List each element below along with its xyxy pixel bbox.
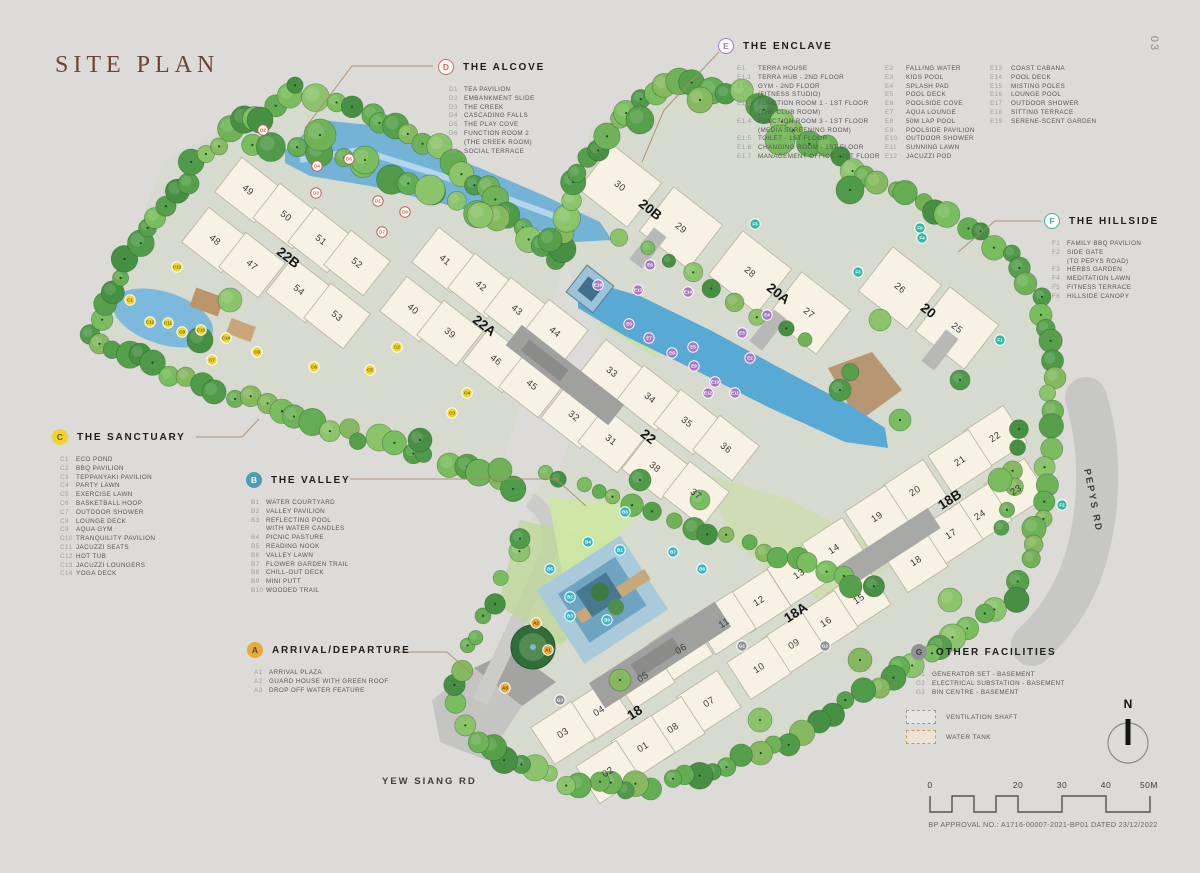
- map-marker-code: D7: [379, 230, 385, 235]
- legend-column: A1ARRIVAL PLAZAA2GUARD HOUSE WITH GREEN …: [254, 669, 389, 695]
- map-marker-code: E19: [594, 283, 603, 288]
- legend-item-code: B6: [251, 552, 266, 561]
- legend-item: C2BBQ PAVILION: [60, 465, 155, 474]
- legend-item-label: OUTDOOR SHOWER: [1011, 100, 1079, 109]
- legend-item-label: EXERCISE LAWN: [76, 491, 133, 500]
- legend-item: E14POOL DECK: [990, 74, 1097, 83]
- legend-item-label: SPLASH PAD: [906, 83, 949, 92]
- legend-item: G3BIN CENTRE - BASEMENT: [916, 689, 1065, 698]
- legend-item: C1ECO POND: [60, 456, 155, 465]
- legend-item-label: EMBANKMENT SLIDE: [464, 95, 535, 104]
- legend-item-code: E1.6: [737, 144, 758, 153]
- scale-tick: 40: [1101, 780, 1111, 790]
- legend-item-code: C3: [60, 474, 76, 483]
- legend-item-code: D7: [449, 148, 464, 157]
- legend-item-label: TEA PAVILION: [464, 86, 511, 95]
- map-marker-code: E14: [684, 290, 693, 295]
- map-marker-code: F2: [1059, 503, 1065, 508]
- legend-item-label: TERRA HOUSE: [758, 65, 808, 74]
- legend-item-code: G2: [916, 680, 932, 689]
- legend-item-label: FLOWER GARDEN TRAIL: [266, 561, 349, 570]
- map-marker-code: E3: [739, 331, 745, 336]
- legend-item-label: LOUNGE POOL: [1011, 91, 1061, 100]
- map-marker-code: F1: [997, 338, 1003, 343]
- legend-item: B5READING NOOK: [251, 543, 349, 552]
- legend-item-label: POOL DECK: [906, 91, 946, 100]
- map-marker-code: E11: [731, 391, 739, 396]
- road-label-yew-siang: YEW SIANG RD: [382, 776, 477, 787]
- legend-badge-E: E: [718, 38, 734, 54]
- legend-item: E1.2GYM - 2ND FLOOR: [737, 83, 880, 92]
- legend-item-code: F4: [1052, 275, 1067, 284]
- page-number: 03: [1148, 36, 1160, 52]
- scale-tick: 20: [1013, 780, 1023, 790]
- legend-item: F5FITNESS TERRACE: [1052, 284, 1141, 293]
- legend-item: C9AQUA GYM: [60, 526, 155, 535]
- legend-item: E6POOLSIDE COVE: [885, 100, 975, 109]
- legend-section-E: ETHE ENCLAVEE1TERRA HOUSEE1.1TERRA HUB -…: [718, 38, 833, 54]
- legend-item-code: [737, 127, 758, 136]
- legend-column: E1TERRA HOUSEE1.1TERRA HUB - 2ND FLOORE1…: [737, 65, 880, 162]
- map-marker-code: C10: [197, 328, 206, 333]
- compass-icon: [1100, 711, 1156, 767]
- legend-item-code: C9: [60, 526, 76, 535]
- legend-item-code: D1: [449, 86, 464, 95]
- legend-item-label: COAST CABANA: [1011, 65, 1065, 74]
- legend-item-code: D6: [449, 130, 464, 139]
- map-marker-code: G1: [739, 644, 746, 649]
- legend-item-code: E14: [990, 74, 1011, 83]
- legend-item-code: [1052, 258, 1067, 267]
- legend-item: E19SERENE-SCENT GARDEN: [990, 118, 1097, 127]
- legend-title: OTHER FACILITIES: [936, 647, 1056, 658]
- legend-item: C7OUTDOOR SHOWER: [60, 509, 155, 518]
- legend-item-label: JACUZZI POD: [906, 153, 952, 162]
- legend-item: C14YOGA DECK: [60, 570, 155, 579]
- legend-title: THE HILLSIDE: [1069, 216, 1159, 227]
- legend-item: E4SPLASH PAD: [885, 83, 975, 92]
- legend-item-label: HOT TUB: [76, 553, 106, 562]
- legend-item-code: C13: [60, 562, 76, 571]
- legend-item-label: FAMILY BBQ PAVILION: [1067, 240, 1141, 249]
- legend-item: E7AQUA LOUNGE: [885, 109, 975, 118]
- page-title: SITE PLAN: [55, 52, 219, 79]
- legend-item: G2ELECTRICAL SUBSTATION - BASEMENT: [916, 680, 1065, 689]
- legend-item-code: E5: [885, 91, 906, 100]
- legend-item-code: E12: [885, 153, 906, 162]
- map-marker-code: B3: [567, 614, 573, 619]
- legend-item: E3KIDS POOL: [885, 74, 975, 83]
- legend-item-code: E6: [885, 100, 906, 109]
- legend-item: F1FAMILY BBQ PAVILION: [1052, 240, 1141, 249]
- map-marker-code: E8: [647, 263, 653, 268]
- map-marker-code: C5: [367, 368, 373, 373]
- legend-item-code: E13: [990, 65, 1011, 74]
- legend-item-code: B5: [251, 543, 266, 552]
- legend-item-code: F2: [1052, 249, 1067, 258]
- legend-item-code: E3: [885, 74, 906, 83]
- map-marker-code: G2: [822, 644, 829, 649]
- legend-item-code: E9: [885, 127, 906, 136]
- map-marker-code: E8: [669, 351, 675, 356]
- legend-item: C10TRANQUILITY PAVILION: [60, 535, 155, 544]
- legend-item: B4PICNIC PASTURE: [251, 534, 349, 543]
- legend-item-code: E1.7: [737, 153, 758, 162]
- legend-item: E16LOUNGE POOL: [990, 91, 1097, 100]
- map-marker-code: B7: [670, 550, 676, 555]
- legend-item-code: G3: [916, 689, 932, 698]
- map-marker-code: C14: [222, 336, 231, 341]
- legend-item-code: G1: [916, 671, 932, 680]
- ventilation-shaft-icon: [906, 710, 936, 724]
- map-marker-code: A3: [502, 686, 508, 691]
- legend-item-label: MEDITATION LAWN: [1067, 275, 1131, 284]
- water-tank-label: WATER TANK: [946, 734, 991, 741]
- legend-section-D: DTHE ALCOVED1TEA PAVILIOND2EMBANKMENT SL…: [438, 59, 545, 75]
- legend-item-code: C4: [60, 482, 76, 491]
- legend-item-label: POOLSIDE COVE: [906, 100, 963, 109]
- legend-item-label: KIDS POOL: [906, 74, 944, 83]
- legend-item-code: C1: [60, 456, 76, 465]
- legend-item: D4CASCADING FALLS: [449, 112, 535, 121]
- ventilation-shaft-label: VENTILATION SHAFT: [946, 714, 1018, 721]
- legend-item-code: C10: [60, 535, 76, 544]
- legend-item-label: WOODED TRAIL: [266, 587, 319, 596]
- legend-header: BTHE VALLEY: [246, 472, 350, 488]
- legend-item-code: F1: [1052, 240, 1067, 249]
- legend-item-label: AQUA GYM: [76, 526, 113, 535]
- legend-title: ARRIVAL/DEPARTURE: [272, 645, 411, 656]
- legend-item-code: B1: [251, 499, 266, 508]
- legend-item: B6VALLEY LAWN: [251, 552, 349, 561]
- map-marker-code: C8: [254, 350, 260, 355]
- legend-badge-F: F: [1044, 213, 1060, 229]
- legend-item: E17OUTDOOR SHOWER: [990, 100, 1097, 109]
- legend-title: THE SANCTUARY: [77, 432, 186, 443]
- map-marker-code: E7: [646, 336, 652, 341]
- map-marker-code: E13: [634, 288, 643, 293]
- legend-item: A1ARRIVAL PLAZA: [254, 669, 389, 678]
- legend-item-code: E1.1: [737, 74, 758, 83]
- legend-badge-A: A: [247, 642, 263, 658]
- map-marker-code: C3: [449, 411, 455, 416]
- legend-item-label: WATER COURTYARD: [266, 499, 335, 508]
- map-marker-code: B6: [622, 510, 628, 515]
- legend-header: ETHE ENCLAVE: [718, 38, 833, 54]
- legend-item-code: C7: [60, 509, 76, 518]
- legend-item-code: A1: [254, 669, 269, 678]
- legend-item-code: E19: [990, 118, 1011, 127]
- legend-item-label: MANAGEMENT OFFICE - 1ST FLOOR: [758, 153, 880, 162]
- legend-item-code: [449, 139, 464, 148]
- map-marker-code: C7: [209, 358, 215, 363]
- legend-item-label: TRANQUILITY PAVILION: [76, 535, 155, 544]
- legend-item-code: A3: [254, 687, 269, 696]
- legend-item: (TO PEPYS ROAD): [1052, 258, 1141, 267]
- legend-item-code: D5: [449, 121, 464, 130]
- map-marker-code: D4: [314, 164, 320, 169]
- legend-item-label: CHANGING ROOM - 1ST FLOOR: [758, 144, 864, 153]
- legend-item: E12JACUZZI POD: [885, 153, 975, 162]
- legend-item-label: OUTDOOR SHOWER: [906, 135, 974, 144]
- legend-item-code: C6: [60, 500, 76, 509]
- legend-item-label: PARTY LAWN: [76, 482, 120, 491]
- legend-item-label: REFLECTING POOL: [266, 517, 331, 526]
- map-marker-code: C6: [311, 365, 317, 370]
- legend-item-label: FUNCTION ROOM 3 - 1ST FLOOR: [758, 118, 868, 127]
- legend-item: F3HERBS GARDEN: [1052, 266, 1141, 275]
- legend-item: E18SITTING TERRACE: [990, 109, 1097, 118]
- legend-column: B1WATER COURTYARDB2VALLEY PAVILIONB3REFL…: [251, 499, 349, 596]
- legend-badge-D: D: [438, 59, 454, 75]
- legend-item-code: A2: [254, 678, 269, 687]
- legend-item-code: E1.2: [737, 83, 758, 92]
- scale-tick: 50M: [1140, 780, 1158, 790]
- map-marker-code: B2: [567, 595, 573, 600]
- legend-column: G1GENERATOR SET - BASEMENTG2ELECTRICAL S…: [916, 671, 1065, 697]
- legend-item: C12HOT TUB: [60, 553, 155, 562]
- legend-item-label: POOLSIDE PAVILION: [906, 127, 975, 136]
- legend-item-label: TEPPANYAKI PAVILION: [76, 474, 152, 483]
- legend-item-label: PICNIC PASTURE: [266, 534, 324, 543]
- map-marker-code: B8: [699, 567, 705, 572]
- legend-item: B7FLOWER GARDEN TRAIL: [251, 561, 349, 570]
- map-marker-code: B4: [585, 540, 591, 545]
- legend-item-code: F5: [1052, 284, 1067, 293]
- legend-item: D3THE CREEK: [449, 104, 535, 113]
- map-marker-code: C12: [146, 320, 155, 325]
- legend-item: E1TERRA HOUSE: [737, 65, 880, 74]
- legend-item-code: D4: [449, 112, 464, 121]
- legend-item: C8LOUNGE DECK: [60, 518, 155, 527]
- map-marker-code: E2: [747, 356, 753, 361]
- legend-item-label: VALLEY PAVILION: [266, 508, 325, 517]
- legend-item-label: GENERATOR SET - BASEMENT: [932, 671, 1035, 680]
- legend-item-code: E4: [885, 83, 906, 92]
- approval-note: BP APPROVAL NO.: A1716-00007-2021-BP01 D…: [918, 820, 1168, 829]
- scale-bar: 020304050M: [925, 774, 1165, 820]
- legend-item-code: E15: [990, 83, 1011, 92]
- legend-item: C11JACUZZI SEATS: [60, 544, 155, 553]
- legend-item: E9POOLSIDE PAVILION: [885, 127, 975, 136]
- legend-item-code: E18: [990, 109, 1011, 118]
- map-marker-code: E4: [764, 313, 770, 318]
- map-marker-code: B1: [617, 548, 623, 553]
- legend-item: C3TEPPANYAKI PAVILION: [60, 474, 155, 483]
- legend-section-B: BTHE VALLEYB1WATER COURTYARDB2VALLEY PAV…: [246, 472, 350, 488]
- map-marker-code: C1: [127, 298, 133, 303]
- site-plan-page: D2D4D5D3D1D6D7C1C13C11C9C10C12C14C7C8C6C…: [0, 0, 1200, 873]
- map-marker-code: F4: [919, 236, 925, 241]
- legend-item: D1TEA PAVILION: [449, 86, 535, 95]
- legend-item-label: HERBS GARDEN: [1067, 266, 1122, 275]
- legend-item-code: B9: [251, 578, 266, 587]
- legend-item-code: E7: [885, 109, 906, 118]
- legend-item: E5POOL DECK: [885, 91, 975, 100]
- legend-item-label: (MEDIA SCREENING ROOM): [758, 127, 851, 136]
- legend-item: E1.1TERRA HUB - 2ND FLOOR: [737, 74, 880, 83]
- legend-column: F1FAMILY BBQ PAVILIONF2SIDE GATE(TO PEPY…: [1052, 240, 1141, 302]
- legend-item-code: E2: [885, 65, 906, 74]
- legend-item-label: SIDE GATE: [1067, 249, 1104, 258]
- legend-item: E1.7MANAGEMENT OFFICE - 1ST FLOOR: [737, 153, 880, 162]
- legend-section-G: GOTHER FACILITIESG1GENERATOR SET - BASEM…: [911, 644, 1056, 660]
- legend-item: B9MINI PUTT: [251, 578, 349, 587]
- legend-item-label: GUARD HOUSE WITH GREEN ROOF: [269, 678, 389, 687]
- legend-item-label: 50M LAP POOL: [906, 118, 956, 127]
- legend-item: WITH WATER CANDLES: [251, 525, 349, 534]
- legend-item-label: ECO POND: [76, 456, 113, 465]
- legend-item-code: B8: [251, 569, 266, 578]
- legend-item: C4PARTY LAWN: [60, 482, 155, 491]
- legend-item-label: READING NOOK: [266, 543, 320, 552]
- map-marker-code: D2: [260, 128, 266, 133]
- legend-item-code: E1.4: [737, 118, 758, 127]
- legend-section-A: AARRIVAL/DEPARTUREA1ARRIVAL PLAZAA2GUARD…: [247, 642, 411, 658]
- legend-item: E10OUTDOOR SHOWER: [885, 135, 975, 144]
- legend-item-label: BBQ PAVILION: [76, 465, 124, 474]
- legend-item: C5EXERCISE LAWN: [60, 491, 155, 500]
- legend-item-label: OUTDOOR SHOWER: [76, 509, 144, 518]
- legend-item: (FITNESS STUDIO): [737, 91, 880, 100]
- legend-item-label: DROP OFF WATER FEATURE: [269, 687, 365, 696]
- legend-item-label: JACUZZI LOUNGERS: [76, 562, 145, 571]
- legend-item-code: E1.3: [737, 100, 758, 109]
- map-marker-code: C4: [464, 391, 470, 396]
- map-marker-code: A1: [545, 648, 551, 653]
- legend-item: (MEDIA SCREENING ROOM): [737, 127, 880, 136]
- legend-item-label: FALLING WATER: [906, 65, 961, 74]
- legend-item: E1.3FUNCTION ROOM 1 - 1ST FLOOR: [737, 100, 880, 109]
- legend-item-code: E8: [885, 118, 906, 127]
- map-marker-code: G3: [557, 698, 564, 703]
- scale-tick: 0: [927, 780, 932, 790]
- map-marker-code: F6: [917, 226, 923, 231]
- legend-item-code: C2: [60, 465, 76, 474]
- legend-header: AARRIVAL/DEPARTURE: [247, 642, 411, 658]
- legend-item: E2FALLING WATER: [885, 65, 975, 74]
- ventilation-shaft-legend: VENTILATION SHAFT: [906, 710, 1018, 724]
- legend-item-code: E1.5: [737, 135, 758, 144]
- map-marker-code: B9: [604, 618, 610, 623]
- legend-item-label: SUNNING LAWN: [906, 144, 960, 153]
- legend-item-code: B3: [251, 517, 266, 526]
- legend-item-label: BIN CENTRE - BASEMENT: [932, 689, 1019, 698]
- map-marker-code: E5: [690, 345, 696, 350]
- legend-item-label: HILLSIDE CANOPY: [1067, 293, 1129, 302]
- legend-item: E11SUNNING LAWN: [885, 144, 975, 153]
- legend-item-code: C12: [60, 553, 76, 562]
- legend-item-code: E1: [737, 65, 758, 74]
- legend-header: CTHE SANCTUARY: [52, 429, 186, 445]
- legend-item-code: C5: [60, 491, 76, 500]
- map-marker-code: C13: [173, 265, 182, 270]
- legend-item: F4MEDITATION LAWN: [1052, 275, 1141, 284]
- water-tank-legend: WATER TANK: [906, 730, 1018, 744]
- map-marker-code: A2: [533, 621, 539, 626]
- legend-item: B1WATER COURTYARD: [251, 499, 349, 508]
- map-marker-code: C11: [164, 321, 173, 326]
- legend-item: D2EMBANKMENT SLIDE: [449, 95, 535, 104]
- legend-item-label: MINI PUTT: [266, 578, 301, 587]
- legend-item-code: F3: [1052, 266, 1067, 275]
- legend-badge-C: C: [52, 429, 68, 445]
- legend-item-label: GYM - 2ND FLOOR: [758, 83, 820, 92]
- legend-item-label: TOILET - 1ST FLOOR: [758, 135, 828, 144]
- legend-item-label: YOGA DECK: [76, 570, 117, 579]
- legend-item: G1GENERATOR SET - BASEMENT: [916, 671, 1065, 680]
- legend-item-code: C14: [60, 570, 76, 579]
- legend-item: (THE CREEK ROOM): [449, 139, 535, 148]
- symbol-legend: VENTILATION SHAFT WATER TANK: [906, 710, 1018, 750]
- scale-tick: 30: [1057, 780, 1067, 790]
- legend-column: D1TEA PAVILIOND2EMBANKMENT SLIDED3THE CR…: [449, 86, 535, 156]
- legend-item-label: SOCIAL TERRACE: [464, 148, 524, 157]
- legend-item: B3REFLECTING POOL: [251, 517, 349, 526]
- legend-item-label: (TO PEPYS ROAD): [1067, 258, 1129, 267]
- legend-item-code: E10: [885, 135, 906, 144]
- legend-item: B10WOODED TRAIL: [251, 587, 349, 596]
- legend-item: E850M LAP POOL: [885, 118, 975, 127]
- legend-title: THE VALLEY: [271, 475, 350, 486]
- legend-column: E13COAST CABANAE14POOL DECKE15MISTING PO…: [990, 65, 1097, 127]
- legend-item-label: CASCADING FALLS: [464, 112, 528, 121]
- legend-item-label: MISTING POLES: [1011, 83, 1065, 92]
- legend-item: D7SOCIAL TERRACE: [449, 148, 535, 157]
- legend-item: C6BASKETBALL HOOP: [60, 500, 155, 509]
- legend-item-label: CHILL-OUT DECK: [266, 569, 324, 578]
- legend-item: B8CHILL-OUT DECK: [251, 569, 349, 578]
- legend-column: C1ECO PONDC2BBQ PAVILIONC3TEPPANYAKI PAV…: [60, 456, 155, 579]
- legend-item-label: POOL DECK: [1011, 74, 1051, 83]
- legend-item-code: B4: [251, 534, 266, 543]
- compass: N: [1100, 697, 1156, 772]
- legend-item: A2GUARD HOUSE WITH GREEN ROOF: [254, 678, 389, 687]
- legend-item-code: D2: [449, 95, 464, 104]
- legend-item-label: LOUNGE DECK: [76, 518, 126, 527]
- legend-item: E15MISTING POLES: [990, 83, 1097, 92]
- legend-item-label: AQUA LOUNGE: [906, 109, 956, 118]
- legend-item-code: B7: [251, 561, 266, 570]
- legend-item-label: (THE CLUB ROOM): [758, 109, 821, 118]
- legend-item: A3DROP OFF WATER FEATURE: [254, 687, 389, 696]
- map-marker-code: D6: [402, 210, 408, 215]
- map-marker-code: E12: [704, 391, 713, 396]
- legend-item-label: SITTING TERRACE: [1011, 109, 1074, 118]
- legend-item: C13JACUZZI LOUNGERS: [60, 562, 155, 571]
- legend-section-F: FTHE HILLSIDEF1FAMILY BBQ PAVILIONF2SIDE…: [1044, 213, 1159, 229]
- map-marker-code: F5: [752, 222, 758, 227]
- legend-item-code: D3: [449, 104, 464, 113]
- legend-item: E1.6CHANGING ROOM - 1ST FLOOR: [737, 144, 880, 153]
- legend-item: B2VALLEY PAVILION: [251, 508, 349, 517]
- legend-item: D6FUNCTION ROOM 2: [449, 130, 535, 139]
- legend-item-code: C11: [60, 544, 76, 553]
- legend-column: E2FALLING WATERE3KIDS POOLE4SPLASH PADE5…: [885, 65, 975, 162]
- legend-title: THE ALCOVE: [463, 62, 545, 73]
- legend-item-label: SERENE-SCENT GARDEN: [1011, 118, 1097, 127]
- legend-item-label: (FITNESS STUDIO): [758, 91, 821, 100]
- legend-item-label: FITNESS TERRACE: [1067, 284, 1131, 293]
- legend-header: GOTHER FACILITIES: [911, 644, 1056, 660]
- legend-item-code: C8: [60, 518, 76, 527]
- legend-item: D5THE PLAY COVE: [449, 121, 535, 130]
- legend-item-code: B2: [251, 508, 266, 517]
- map-marker-code: D3: [313, 191, 319, 196]
- legend-item-code: F6: [1052, 293, 1067, 302]
- legend-item-code: [737, 109, 758, 118]
- legend-item: (THE CLUB ROOM): [737, 109, 880, 118]
